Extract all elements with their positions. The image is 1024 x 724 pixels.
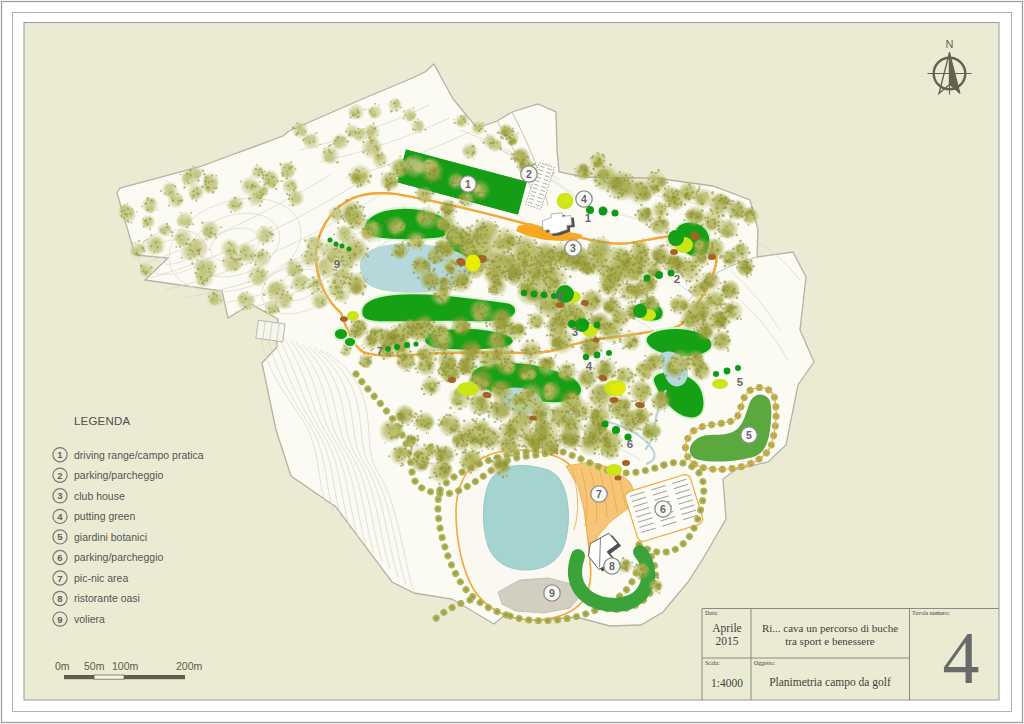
svg-text:7: 7	[377, 345, 383, 357]
svg-text:1: 1	[585, 212, 592, 224]
svg-text:5: 5	[737, 376, 744, 388]
svg-text:parking/parcheggio: parking/parcheggio	[74, 551, 163, 563]
svg-text:9: 9	[549, 587, 555, 599]
svg-text:4: 4	[943, 617, 980, 699]
svg-text:Aprile: Aprile	[712, 622, 741, 635]
svg-text:4: 4	[586, 360, 593, 372]
svg-text:9: 9	[57, 614, 62, 625]
svg-text:2: 2	[674, 273, 680, 285]
svg-text:parking/parcheggio: parking/parcheggio	[74, 469, 163, 481]
svg-text:0m: 0m	[55, 660, 70, 672]
svg-text:Scala:: Scala:	[705, 660, 720, 666]
svg-text:8: 8	[609, 560, 615, 572]
svg-text:7: 7	[596, 488, 602, 500]
svg-text:pic-nic area: pic-nic area	[74, 572, 128, 584]
svg-text:2: 2	[57, 470, 62, 481]
svg-text:3: 3	[570, 242, 576, 254]
svg-text:Oggetto:: Oggetto:	[754, 660, 775, 666]
svg-text:giardini botanici: giardini botanici	[74, 531, 147, 543]
svg-text:3: 3	[57, 490, 62, 501]
svg-text:ristorante oasi: ristorante oasi	[74, 592, 140, 604]
svg-text:6: 6	[57, 552, 62, 563]
svg-text:4: 4	[57, 511, 63, 522]
svg-text:tra sport e benessere: tra sport e benessere	[785, 635, 875, 647]
svg-text:3: 3	[572, 326, 578, 338]
svg-text:LEGENDA: LEGENDA	[74, 415, 130, 427]
svg-text:5: 5	[57, 531, 63, 542]
svg-text:Planimetria campo da golf: Planimetria campo da golf	[769, 676, 891, 689]
svg-text:driving range/campo pratica: driving range/campo pratica	[74, 449, 204, 461]
svg-text:4: 4	[581, 193, 587, 205]
svg-text:Tavola numero:: Tavola numero:	[912, 610, 950, 616]
svg-text:200m: 200m	[176, 660, 203, 672]
svg-text:2: 2	[526, 168, 532, 180]
svg-text:putting green: putting green	[74, 510, 135, 522]
svg-text:6: 6	[660, 503, 666, 515]
svg-text:5: 5	[746, 429, 752, 441]
svg-text:2015: 2015	[716, 635, 739, 647]
svg-text:club house: club house	[74, 490, 125, 502]
svg-text:N: N	[946, 38, 954, 50]
svg-text:1: 1	[465, 178, 471, 190]
svg-text:7: 7	[57, 573, 62, 584]
svg-text:Ri... cava un percorso di buch: Ri... cava un percorso di buche	[762, 622, 898, 634]
svg-text:Data:: Data:	[705, 610, 718, 616]
svg-text:8: 8	[57, 593, 62, 604]
svg-text:1:4000: 1:4000	[711, 677, 743, 689]
svg-text:1: 1	[57, 449, 63, 460]
svg-text:8: 8	[557, 290, 564, 302]
svg-text:9: 9	[334, 258, 340, 270]
svg-text:100m: 100m	[112, 660, 139, 672]
svg-text:voliera: voliera	[74, 613, 105, 625]
svg-text:50m: 50m	[84, 660, 105, 672]
svg-text:6: 6	[627, 438, 633, 450]
